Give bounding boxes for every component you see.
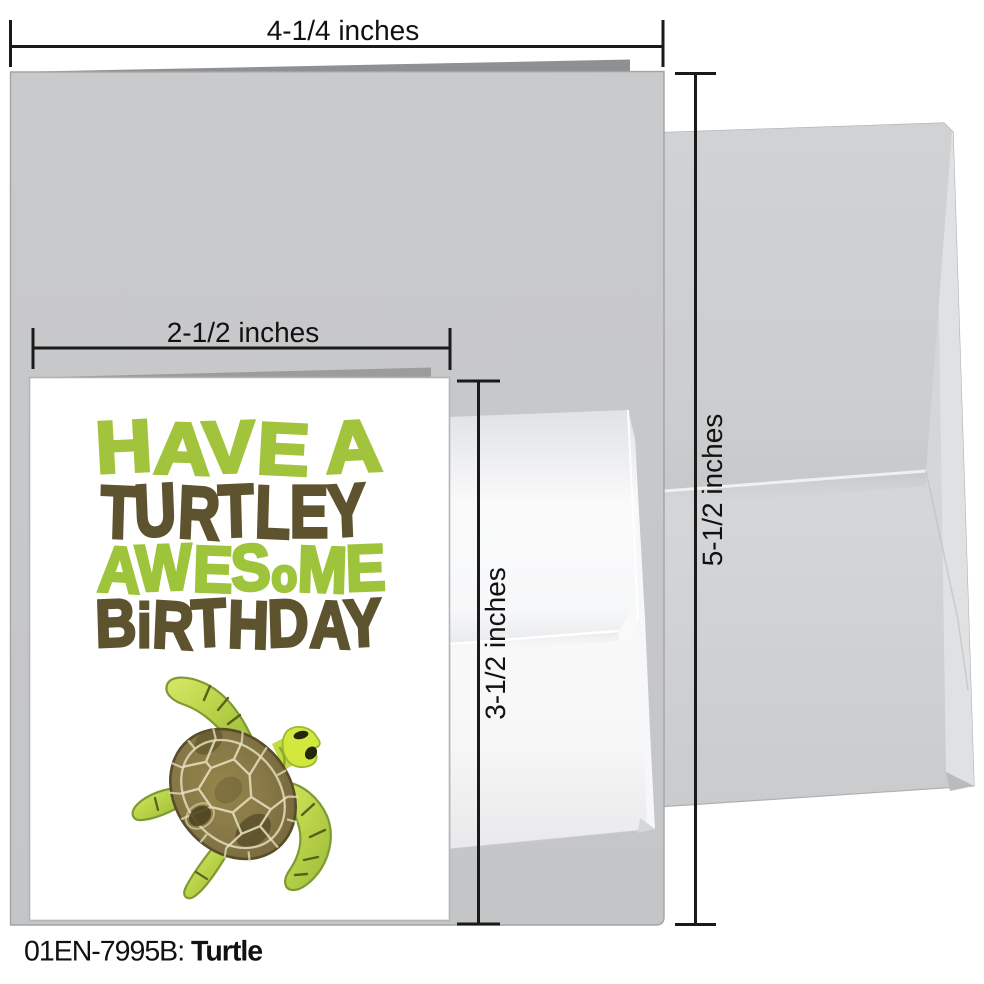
svg-text:2-1/2 inches: 2-1/2 inches xyxy=(167,317,320,348)
svg-text:01EN-7995B: Turtle: 01EN-7995B: Turtle xyxy=(24,936,262,968)
svg-text:5-1/2 inches: 5-1/2 inches xyxy=(697,414,728,567)
svg-text:BiRTHDAY: BiRTHDAY xyxy=(94,585,384,664)
svg-text:3-1/2 inches: 3-1/2 inches xyxy=(480,567,511,720)
svg-text:4-1/4 inches: 4-1/4 inches xyxy=(267,15,420,46)
